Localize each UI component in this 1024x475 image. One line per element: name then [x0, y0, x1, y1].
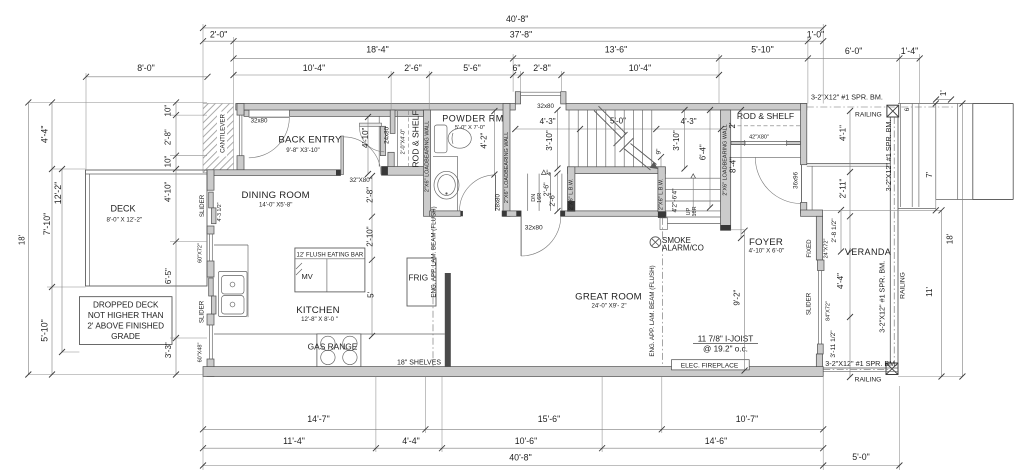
svg-text:24"X72": 24"X72"	[824, 239, 830, 259]
svg-text:13'-6": 13'-6"	[605, 45, 627, 55]
svg-text:3-2"X12" #1 SPR. BM.: 3-2"X12" #1 SPR. BM.	[825, 359, 897, 368]
svg-text:8'-0" X 12'-2": 8'-0" X 12'-2"	[106, 216, 142, 223]
svg-text:4'-10": 4'-10"	[164, 181, 173, 202]
svg-text:VERANDA: VERANDA	[845, 247, 891, 257]
svg-text:4'-2": 4'-2"	[480, 132, 489, 148]
svg-text:4'-4": 4'-4"	[40, 126, 50, 144]
svg-text:2'-8": 2'-8"	[365, 187, 374, 203]
svg-text:RAILING: RAILING	[900, 272, 907, 299]
svg-text:2"X6" L.B.W.: 2"X6" L.B.W.	[569, 178, 575, 210]
svg-text:GREAT ROOM: GREAT ROOM	[575, 292, 642, 303]
svg-text:4'-1": 4'-1"	[839, 125, 848, 141]
svg-text:10'-4": 10'-4"	[303, 63, 325, 73]
svg-text:NOT HIGHER THAN: NOT HIGHER THAN	[88, 311, 164, 320]
svg-text:6": 6"	[512, 63, 520, 73]
svg-text:40'-8": 40'-8"	[509, 452, 531, 462]
svg-text:2'-0": 2'-0"	[210, 30, 228, 40]
svg-text:2'-8": 2'-8"	[533, 63, 551, 73]
svg-text:60"X48": 60"X48"	[198, 343, 204, 363]
svg-text:11': 11'	[925, 287, 934, 297]
svg-text:16R: 16R	[537, 193, 543, 203]
svg-text:24x80: 24x80	[384, 126, 391, 143]
svg-text:SLIDER: SLIDER	[806, 292, 813, 315]
svg-text:10'-6": 10'-6"	[515, 436, 537, 446]
svg-text:ENG. APP. LAM. BEAM (FLUSH): ENG. APP. LAM. BEAM (FLUSH)	[649, 265, 656, 356]
svg-text:ALARM/CO: ALARM/CO	[662, 243, 704, 252]
svg-text:GAS RANGE: GAS RANGE	[308, 341, 358, 351]
svg-text:5'-0": 5'-0"	[852, 452, 870, 462]
svg-text:DINING ROOM: DINING ROOM	[242, 190, 310, 201]
svg-text:9'-8" X3'-10": 9'-8" X3'-10"	[286, 147, 319, 154]
svg-text:9": 9"	[656, 148, 663, 155]
svg-text:MV: MV	[302, 272, 313, 281]
svg-text:3-2"X12" #1 SPR. BM.: 3-2"X12" #1 SPR. BM.	[877, 261, 886, 333]
svg-text:42"X80": 42"X80"	[749, 135, 769, 141]
svg-text:2'-6": 2'-6"	[550, 192, 557, 206]
svg-text:18': 18'	[946, 233, 955, 244]
svg-text:4'-4": 4'-4"	[836, 273, 845, 289]
svg-text:12'-2": 12'-2"	[53, 182, 63, 204]
svg-text:84"X72": 84"X72"	[826, 301, 832, 321]
svg-text:ELEC. FIREPLACE: ELEC. FIREPLACE	[681, 362, 739, 369]
svg-text:6'-5": 6'-5"	[164, 268, 173, 284]
svg-text:10'-4": 10'-4"	[629, 63, 651, 73]
svg-text:7': 7'	[925, 171, 934, 177]
svg-text:2"X6" L.B.W.: 2"X6" L.B.W.	[659, 178, 665, 210]
svg-text:10": 10"	[164, 105, 173, 117]
svg-text:18': 18'	[18, 234, 27, 245]
svg-text:RAILING: RAILING	[855, 377, 882, 384]
svg-text:2'-10": 2'-10"	[365, 226, 374, 247]
svg-text:60"X72": 60"X72"	[198, 243, 204, 263]
svg-text:FOYER: FOYER	[749, 237, 783, 248]
svg-text:40'-8": 40'-8"	[506, 14, 528, 24]
svg-text:9'-2": 9'-2"	[733, 289, 742, 305]
svg-text:8'-4": 8'-4"	[729, 157, 738, 173]
svg-text:15'-6": 15'-6"	[538, 414, 560, 424]
svg-text:2"X6" LOADBEARING WALL: 2"X6" LOADBEARING WALL	[424, 121, 430, 192]
svg-text:18'-4": 18'-4"	[366, 45, 388, 55]
svg-text:10'-7": 10'-7"	[736, 414, 758, 424]
svg-text:6'-0": 6'-0"	[845, 46, 863, 56]
svg-text:2'-0"X4'-0": 2'-0"X4'-0"	[401, 129, 407, 155]
svg-text:6: 6	[904, 107, 911, 111]
svg-text:4'-10" X 6'-0": 4'-10" X 6'-0"	[749, 248, 785, 255]
svg-text:1': 1'	[939, 90, 948, 96]
svg-text:7'-10": 7'-10"	[42, 213, 52, 235]
svg-text:DROPPED DECK: DROPPED DECK	[93, 301, 159, 310]
svg-text:24'-0" X9'- 2": 24'-0" X9'- 2"	[591, 303, 626, 310]
svg-text:18" SHELVES: 18" SHELVES	[397, 360, 441, 367]
svg-text:3'-10": 3'-10"	[672, 130, 681, 151]
svg-text:BACK ENTRY: BACK ENTRY	[278, 135, 342, 146]
svg-text:5'-0": 5'-0"	[610, 117, 626, 126]
svg-text:1'-0": 1'-0"	[807, 30, 825, 40]
svg-text:@ 19.2" o.c.: @ 19.2" o.c.	[703, 344, 748, 353]
svg-text:5': 5'	[366, 291, 375, 297]
svg-text:FRIG: FRIG	[409, 273, 429, 282]
svg-text:32x80: 32x80	[525, 224, 543, 231]
svg-text:ROD & SHELF: ROD & SHELF	[411, 110, 421, 167]
svg-text:32"X80": 32"X80"	[350, 177, 372, 184]
svg-text:3'-11 1/2": 3'-11 1/2"	[830, 330, 837, 358]
svg-text:5'-10": 5'-10"	[40, 319, 50, 341]
svg-text:4'-10": 4'-10"	[361, 127, 370, 148]
svg-text:5'-0" X 7'-0": 5'-0" X 7'-0"	[455, 125, 485, 131]
svg-text:2"X6" LOADBEARING WALL: 2"X6" LOADBEARING WALL	[504, 132, 510, 203]
svg-text:32x80: 32x80	[251, 118, 268, 125]
svg-text:4'-3 1/2": 4'-3 1/2"	[217, 202, 223, 221]
svg-text:RAILING: RAILING	[855, 112, 882, 119]
svg-text:14'-0" X5'-8": 14'-0" X5'-8"	[259, 202, 292, 209]
svg-text:2"X6" LOADBEARING WALL: 2"X6" LOADBEARING WALL	[723, 124, 729, 195]
svg-text:3-2"X12" #1 SPR. BM.: 3-2"X12" #1 SPR. BM.	[811, 92, 883, 101]
svg-text:2'-8 1/2": 2'-8 1/2"	[831, 218, 838, 243]
svg-text:2'-11": 2'-11"	[839, 178, 848, 198]
svg-text:14'-7": 14'-7"	[307, 414, 329, 424]
svg-text:3'-10": 3'-10"	[545, 130, 554, 151]
svg-text:3-2"X12" #1 SPR. BM.: 3-2"X12" #1 SPR. BM.	[884, 120, 893, 192]
svg-text:ENG. APP. LAM. BEAM (FLUSH): ENG. APP. LAM. BEAM (FLUSH)	[431, 206, 438, 297]
svg-text:4'-4": 4'-4"	[402, 436, 420, 446]
svg-text:28x80: 28x80	[494, 194, 501, 211]
svg-text:2'-6": 2'-6"	[404, 63, 422, 73]
svg-text:5'-6": 5'-6"	[463, 63, 481, 73]
svg-text:2'-8": 2'-8"	[164, 129, 173, 145]
svg-text:4'-3": 4'-3"	[540, 117, 556, 126]
svg-text:11 7/8" I-JOIST: 11 7/8" I-JOIST	[698, 335, 754, 344]
svg-text:ROD & SHELF: ROD & SHELF	[737, 111, 794, 121]
svg-text:FIXED: FIXED	[806, 239, 813, 258]
svg-text:SLIDER: SLIDER	[199, 300, 206, 323]
svg-text:4": 4"	[546, 169, 553, 176]
svg-text:8'-0": 8'-0"	[137, 63, 155, 73]
svg-text:5'-10": 5'-10"	[751, 45, 773, 55]
svg-text:GRADE: GRADE	[111, 332, 141, 341]
svg-text:32x80: 32x80	[537, 103, 554, 110]
svg-text:2': 2'	[728, 122, 737, 128]
svg-text:SLIDER: SLIDER	[199, 194, 206, 217]
svg-text:DECK: DECK	[110, 204, 135, 214]
svg-text:12' FLUSH EATING BAR: 12' FLUSH EATING BAR	[297, 252, 364, 258]
svg-text:3'-3": 3'-3"	[164, 342, 173, 358]
svg-text:KITCHEN: KITCHEN	[296, 305, 340, 316]
svg-text:10": 10"	[164, 155, 173, 167]
svg-text:CANTILEVER: CANTILEVER	[220, 114, 227, 153]
svg-text:2' ABOVE FINISHED: 2' ABOVE FINISHED	[87, 322, 164, 331]
svg-text:37'-8": 37'-8"	[510, 30, 532, 40]
svg-text:6'-4": 6'-4"	[698, 144, 707, 160]
svg-text:12'-8" X 8'-0 ": 12'-8" X 8'-0 "	[301, 316, 338, 323]
svg-text:36x96: 36x96	[792, 171, 799, 188]
svg-text:11'-4": 11'-4"	[283, 436, 305, 446]
svg-text:4'-3": 4'-3"	[681, 117, 697, 126]
svg-text:1'-4": 1'-4"	[901, 46, 919, 56]
svg-text:14'-6": 14'-6"	[705, 436, 727, 446]
svg-text:4'2"-6'4": 4'2"-6'4"	[672, 188, 679, 213]
